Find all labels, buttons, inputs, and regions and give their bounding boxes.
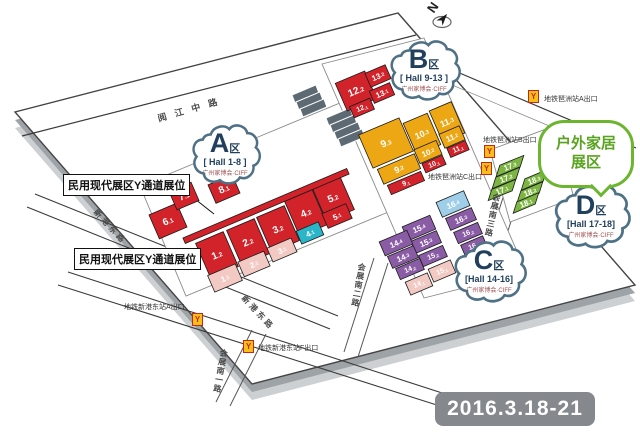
- callout-y-corridor-2: 民用现代展区Y通道展位: [74, 248, 201, 270]
- north-indicator: N: [420, 0, 456, 34]
- outdoor-zone-line1: 户外家居: [556, 135, 616, 154]
- area-hall-range: [ Hall 9-13 ]: [400, 73, 448, 83]
- area-letter: C: [474, 245, 494, 275]
- area-zone: 区: [595, 205, 606, 217]
- area-organizer: 广州家博会·CIFF: [401, 84, 446, 93]
- map-canvas: 1.22.23.24.25.21.12.13.14.15.16.17.18.11…: [0, 0, 640, 447]
- area-hall-range: [Hall 14-16]: [465, 274, 513, 284]
- area-organizer: 广州家博会·CIFF: [202, 168, 247, 177]
- area-letter: B: [409, 44, 429, 74]
- area-organizer: 广州家博会·CIFF: [466, 285, 511, 294]
- area-letter: D: [576, 190, 596, 220]
- outdoor-zone-line2: 展区: [571, 154, 601, 173]
- callout-y-corridor-1: 民用现代展区Y通道展位: [63, 174, 190, 196]
- area-zone: 区: [428, 59, 439, 71]
- area-badge-c: C区 [Hall 14-16] 广州家博会·CIFF: [450, 236, 528, 306]
- area-badge-a: A区 [ Hall 1-8 ] 广州家博会·CIFF: [188, 120, 262, 188]
- area-badge-b: B区 [ Hall 9-13 ] 广州家博会·CIFF: [386, 36, 462, 104]
- area-badge-d: D区 [Hall 17-18] 广州家博会·CIFF: [550, 180, 632, 252]
- event-date-badge: 2016.3.18-21: [435, 392, 595, 426]
- area-zone: 区: [229, 143, 240, 155]
- outdoor-zone-bubble: 户外家居 展区: [538, 120, 634, 188]
- exhibition-site-map: 1.22.23.24.25.21.12.13.14.15.16.17.18.11…: [0, 0, 640, 447]
- area-organizer: 广州家博会·CIFF: [568, 230, 613, 239]
- area-hall-range: [ Hall 1-8 ]: [203, 157, 246, 167]
- area-hall-range: [Hall 17-18]: [567, 219, 615, 229]
- area-zone: 区: [493, 260, 504, 272]
- area-letter: A: [210, 128, 230, 158]
- compass-icon: [430, 10, 456, 32]
